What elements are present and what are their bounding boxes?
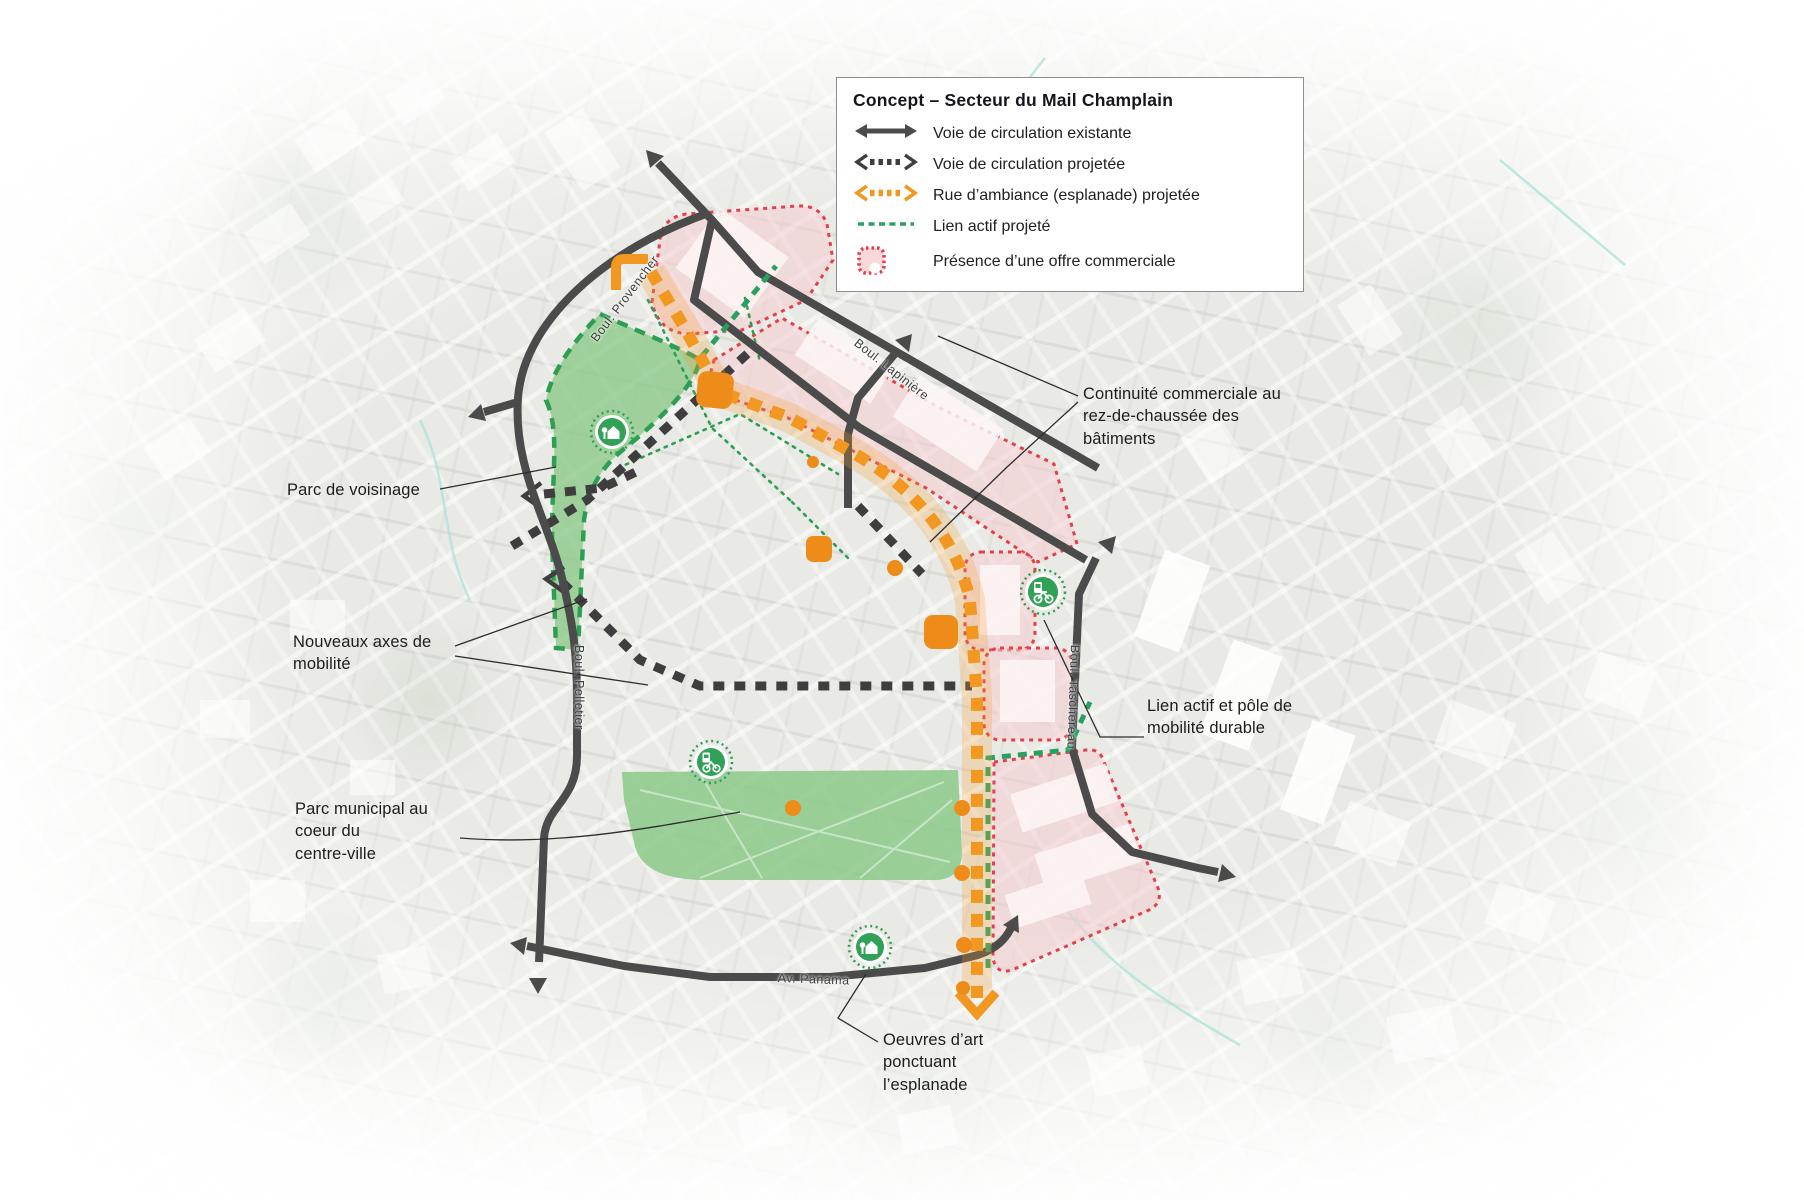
municipal-park <box>622 692 962 880</box>
arrowhead-provencher-west <box>468 404 486 421</box>
legend-item-label: Rue d’ambiance (esplanade) projetée <box>933 187 1200 205</box>
arrowhead-panama-west <box>510 937 527 955</box>
legend-panel: Concept – Secteur du Mail Champlain Voie… <box>836 77 1304 292</box>
legend-item-active-link: Lien actif projeté <box>853 216 1287 237</box>
legend-item-label: Voie de circulation projetée <box>933 156 1125 174</box>
legend-item-label: Voie de circulation existante <box>933 125 1131 143</box>
legend-item-esplanade: Rue d’ambiance (esplanade) projetée <box>853 185 1287 206</box>
legend-title: Concept – Secteur du Mail Champlain <box>853 90 1287 111</box>
annotation-oeuvres-art: Oeuvres d’art ponctuant l’esplanade <box>883 1029 983 1096</box>
annotation-nouveaux-axes: Nouveaux axes de mobilité <box>293 631 431 676</box>
background-buildings-bright <box>1134 550 1356 825</box>
projected-road-south <box>562 582 972 686</box>
arrowhead-pelletier-south <box>529 978 547 994</box>
projected-road-arrow-icon <box>853 152 933 177</box>
legend-item-label: Lien actif projeté <box>933 218 1050 236</box>
esplanade-end-arrow <box>961 996 993 1014</box>
arrowhead-taschereau-north <box>1098 536 1116 554</box>
existing-road-arrow-icon <box>853 121 933 146</box>
commercial-area-swatch-icon <box>853 244 933 281</box>
annotation-parc-de-voisinage: Parc de voisinage <box>287 479 420 501</box>
legend-item-commercial: Présence d’une offre commerciale <box>853 247 1287 277</box>
municipal-park-hatched <box>622 692 958 772</box>
arrowhead-taschereau-east <box>1218 864 1236 882</box>
leader-nouveaux-axes-2 <box>455 656 648 685</box>
road-provencher-west-branch <box>484 402 518 412</box>
street-label-pelletier: Boul. Pelletier <box>572 645 586 730</box>
esplanade-street-arrow-icon <box>853 183 933 208</box>
legend-item-existing-road: Voie de circulation existante <box>853 123 1287 144</box>
annotation-lien-actif: Lien actif et pôle de mobilité durable <box>1147 695 1292 740</box>
concept-plan-page: { "legend": { "title": "Concept – Secteu… <box>0 0 1804 1200</box>
park-marker-panama <box>849 926 891 968</box>
street-label-panama: Av. Panama <box>778 971 850 988</box>
legend-item-projected-road: Voie de circulation projetée <box>853 154 1287 175</box>
annotation-parc-municipal: Parc municipal au coeur du centre-ville <box>295 798 428 865</box>
annotation-continuite-commerciale: Continuité commerciale au rez-de-chaussé… <box>1083 383 1281 450</box>
road-panama <box>527 928 1011 977</box>
active-link-dash-icon <box>853 214 933 239</box>
legend-item-label: Présence d’une offre commerciale <box>933 253 1176 271</box>
